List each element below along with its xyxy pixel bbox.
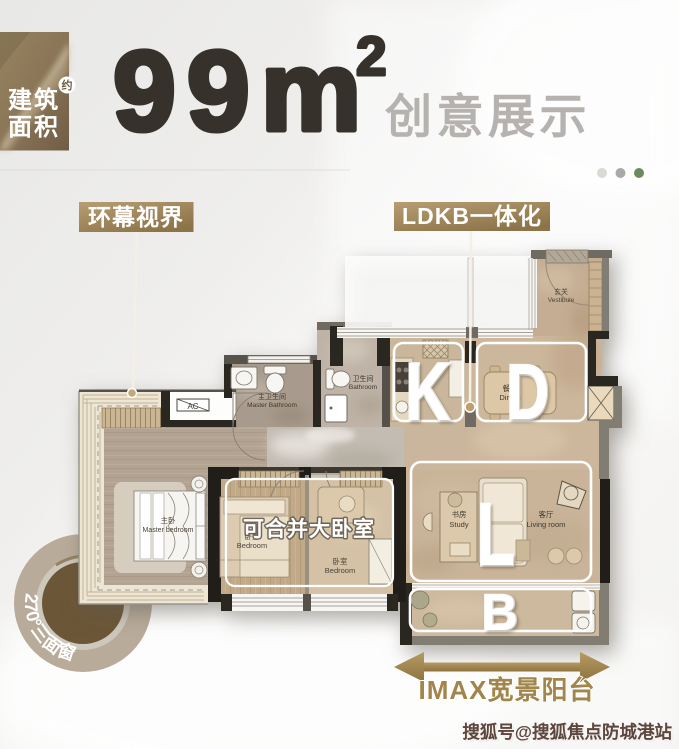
svg-text:Bedroom: Bedroom <box>325 566 355 575</box>
svg-text:Master Bathroom: Master Bathroom <box>247 402 297 409</box>
svg-text:主卧: 主卧 <box>161 515 176 525</box>
svg-text:LDKB一体化: LDKB一体化 <box>402 203 542 229</box>
svg-text:书房: 书房 <box>452 509 467 519</box>
svg-text:卫生间: 卫生间 <box>353 374 374 383</box>
svg-text:约: 约 <box>62 78 73 92</box>
svg-text:面积: 面积 <box>8 114 60 141</box>
svg-text:Bedroom: Bedroom <box>237 541 267 550</box>
svg-text:玄关: 玄关 <box>554 287 568 296</box>
svg-text:卧室: 卧室 <box>333 556 348 566</box>
svg-text:IMAX宽景阳台: IMAX宽景阳台 <box>418 675 595 705</box>
svg-text:D: D <box>507 348 550 436</box>
svg-text:Bathroom: Bathroom <box>349 384 377 391</box>
svg-text:Vestibule: Vestibule <box>548 297 575 304</box>
svg-text:AC: AC <box>187 402 198 411</box>
svg-text:99m: 99m <box>113 28 372 154</box>
svg-text:B: B <box>482 584 518 641</box>
svg-text:K: K <box>406 347 451 438</box>
svg-text:客厅: 客厅 <box>539 509 554 519</box>
svg-text:Master bedroom: Master bedroom <box>143 527 194 534</box>
svg-text:2: 2 <box>356 25 387 87</box>
svg-text:Study: Study <box>449 520 468 529</box>
svg-text:主卫生间: 主卫生间 <box>258 392 286 401</box>
svg-text:可合并大卧室: 可合并大卧室 <box>243 517 375 541</box>
svg-text:搜狐号@搜狐焦点防城港站: 搜狐号@搜狐焦点防城港站 <box>462 722 672 742</box>
svg-text:环幕视界: 环幕视界 <box>88 204 184 230</box>
svg-text:Living room: Living room <box>527 520 566 529</box>
svg-text:创意展示: 创意展示 <box>385 90 591 143</box>
svg-text:建筑: 建筑 <box>8 86 60 114</box>
svg-text:L: L <box>477 485 515 584</box>
